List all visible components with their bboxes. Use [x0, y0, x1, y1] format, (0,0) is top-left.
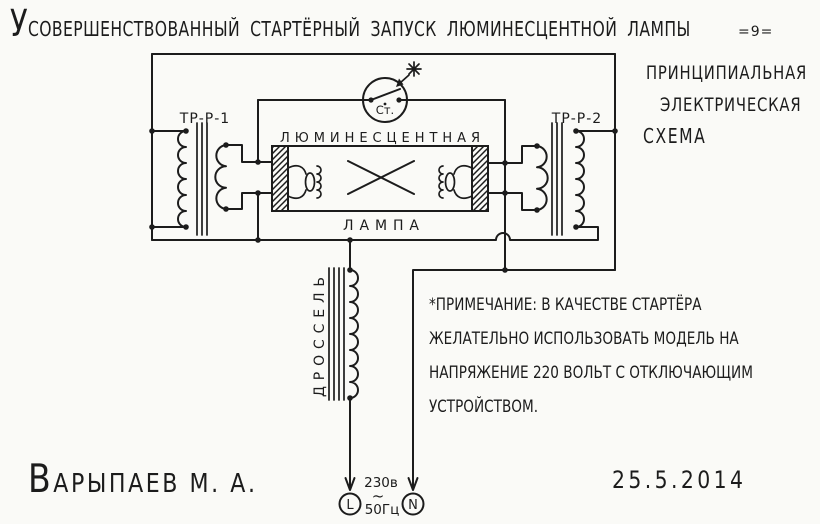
terminal-n-letter: N: [408, 498, 418, 513]
lamp-label-bottom: лампа: [343, 218, 419, 234]
transformer-left-core: [197, 123, 207, 235]
choke: дроссель: [312, 268, 358, 400]
schematic-page: Усовершенствованный стартёрный запуск лю…: [0, 0, 820, 524]
transformer-left-label: Тр-Р-1: [179, 111, 230, 127]
starter: Ст.: [363, 62, 421, 122]
caption-line-1: принципиальная: [646, 62, 807, 84]
transformer-right-core: [552, 123, 562, 235]
choke-core: [329, 268, 344, 400]
lamp-filament-left: [288, 166, 321, 198]
lamp-label-top: люминесцентная: [280, 131, 480, 146]
lamp-cross-mark: [348, 161, 414, 194]
footnote-line-4: устройством.: [429, 390, 753, 424]
choke-label: дроссель: [312, 277, 328, 397]
starter-label: Ст.: [376, 103, 394, 117]
footnote-line-3: напряжение 220 вольт с отключающим: [429, 356, 753, 390]
transformer-right-label: ТР-Р-2: [551, 111, 602, 127]
fluorescent-lamp: люминесцентная лампа: [272, 131, 488, 234]
lamp-electrode-left: [272, 146, 288, 211]
footnote: *Примечание: в качестве стартёра желател…: [429, 288, 753, 424]
caption-line-3: схема: [643, 124, 706, 148]
caption-line-2: электрическая: [660, 94, 801, 116]
transformer-left: Тр-Р-1: [152, 111, 272, 235]
asterisk-marker: [407, 62, 421, 76]
terminal-l-letter: L: [346, 498, 354, 513]
lamp-filament-right: [439, 166, 472, 198]
author-signature: Варыпаев М. А.: [28, 456, 258, 508]
lamp-electrode-right: [472, 146, 488, 211]
footnote-line-2: желательно использовать модель на: [429, 322, 753, 356]
supply-terminals: L N 230в ~ 50Гц: [340, 475, 424, 518]
date: 25.5.2014: [612, 466, 746, 494]
supply-frequency-label: 50Гц: [365, 502, 400, 518]
footnote-line-1: *Примечание: в качестве стартёра: [429, 288, 753, 322]
transformer-right: ТР-Р-2: [488, 111, 615, 235]
